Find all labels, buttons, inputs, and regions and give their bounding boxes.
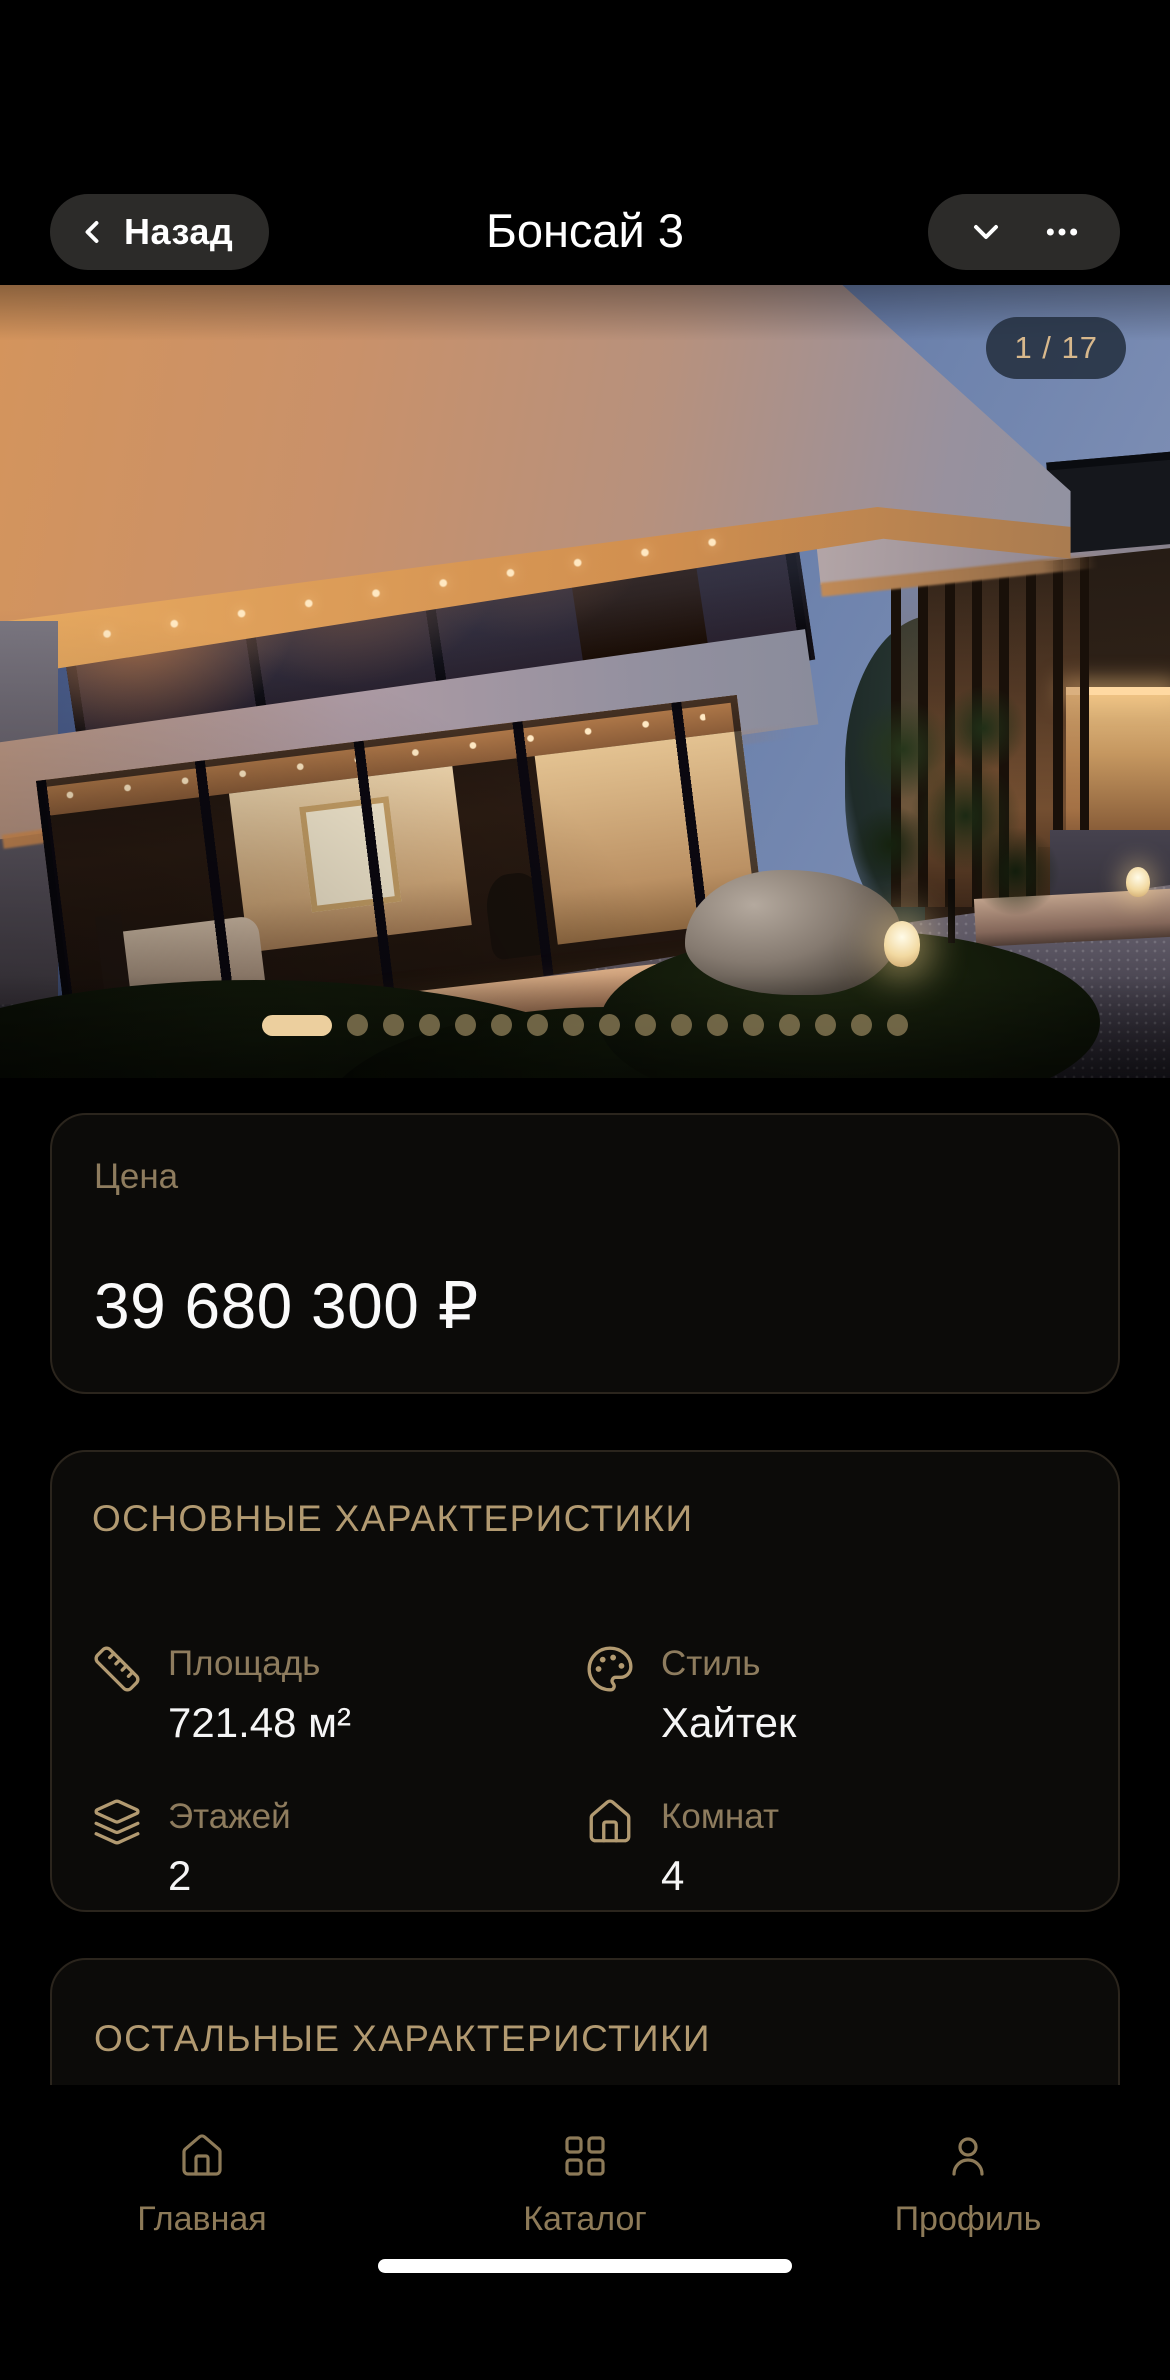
gallery-dot: [887, 1014, 908, 1036]
back-button[interactable]: Назад: [50, 194, 269, 270]
chevron-left-icon: [74, 214, 110, 250]
gallery-dot: [563, 1014, 584, 1036]
gallery-dot: [347, 1014, 368, 1036]
house-icon: [178, 2132, 226, 2180]
gallery-dot: [707, 1014, 728, 1036]
tab-catalog[interactable]: Каталог: [487, 2131, 683, 2240]
spec-rooms: Комнат 4: [585, 1797, 1078, 1900]
gallery-dot: [599, 1014, 620, 1036]
price-label: Цена: [94, 1157, 1076, 1197]
tab-list: Главная Каталог Профиль: [0, 2085, 1170, 2240]
gallery-dot: [383, 1014, 404, 1036]
price-value: 39 680 300 ₽: [94, 1269, 1076, 1344]
spec-value: Хайтек: [661, 1699, 796, 1747]
spec-floors: Этажей 2: [92, 1797, 585, 1900]
spec-value: 4: [661, 1852, 779, 1900]
home-indicator[interactable]: [378, 2259, 792, 2273]
gallery-dot: [491, 1014, 512, 1036]
spec-style: Стиль Хайтек: [585, 1644, 1078, 1747]
gallery-dot-active: [262, 1015, 332, 1036]
gallery-dot: [815, 1014, 836, 1036]
gallery-dot: [455, 1014, 476, 1036]
main-specs-card: ОСНОВНЫЕ ХАРАКТЕРИСТИКИ Площадь 721.48 м…: [50, 1450, 1120, 1912]
gallery-dot: [527, 1014, 548, 1036]
photo-vignette: [0, 285, 1170, 1078]
specs-grid: Площадь 721.48 м² Стиль Хайтек: [92, 1644, 1078, 1900]
gallery-dot: [635, 1014, 656, 1036]
gallery-dot: [851, 1014, 872, 1036]
spec-label: Площадь: [168, 1644, 351, 1684]
back-button-label: Назад: [124, 211, 233, 253]
ellipsis-icon: [1042, 212, 1082, 252]
collapse-button[interactable]: [966, 212, 1006, 252]
property-photo-gallery[interactable]: 1 / 17: [0, 285, 1170, 1078]
gallery-dot: [419, 1014, 440, 1036]
gallery-dots: [0, 1014, 1170, 1036]
page-title: Бонсай 3: [300, 194, 870, 270]
tab-home[interactable]: Главная: [104, 2131, 300, 2240]
main-specs-title: ОСНОВНЫЕ ХАРАКТЕРИСТИКИ: [92, 1498, 1078, 1540]
tab-label: Главная: [137, 2200, 266, 2239]
more-button[interactable]: [1042, 212, 1082, 252]
photo-counter-badge: 1 / 17: [986, 317, 1126, 379]
price-card: Цена 39 680 300 ₽: [50, 1113, 1120, 1394]
chevron-down-icon: [966, 212, 1006, 252]
spec-value: 2: [168, 1852, 291, 1900]
tab-label: Профиль: [895, 2200, 1042, 2239]
other-specs-title: ОСТАЛЬНЫЕ ХАРАКТЕРИСТИКИ: [94, 2018, 1076, 2060]
app-screen: Назад Бонсай 3: [0, 0, 1170, 2380]
ruler-icon: [92, 1644, 142, 1694]
spec-area: Площадь 721.48 м²: [92, 1644, 585, 1747]
spec-label: Этажей: [168, 1797, 291, 1837]
tab-profile[interactable]: Профиль: [870, 2131, 1066, 2240]
house-icon: [585, 1797, 635, 1847]
user-icon: [944, 2132, 992, 2180]
gallery-dot: [779, 1014, 800, 1036]
tab-bar: Главная Каталог Профиль: [0, 2085, 1170, 2380]
palette-icon: [585, 1644, 635, 1694]
spec-label: Комнат: [661, 1797, 779, 1837]
tab-label: Каталог: [523, 2200, 647, 2239]
gallery-dot: [743, 1014, 764, 1036]
gallery-dot: [671, 1014, 692, 1036]
layers-icon: [92, 1797, 142, 1847]
nav-bar: Назад Бонсай 3: [0, 0, 1170, 285]
nav-actions-group: [928, 194, 1120, 270]
spec-label: Стиль: [661, 1644, 796, 1684]
spec-value: 721.48 м²: [168, 1699, 351, 1747]
grid-icon: [561, 2132, 609, 2180]
